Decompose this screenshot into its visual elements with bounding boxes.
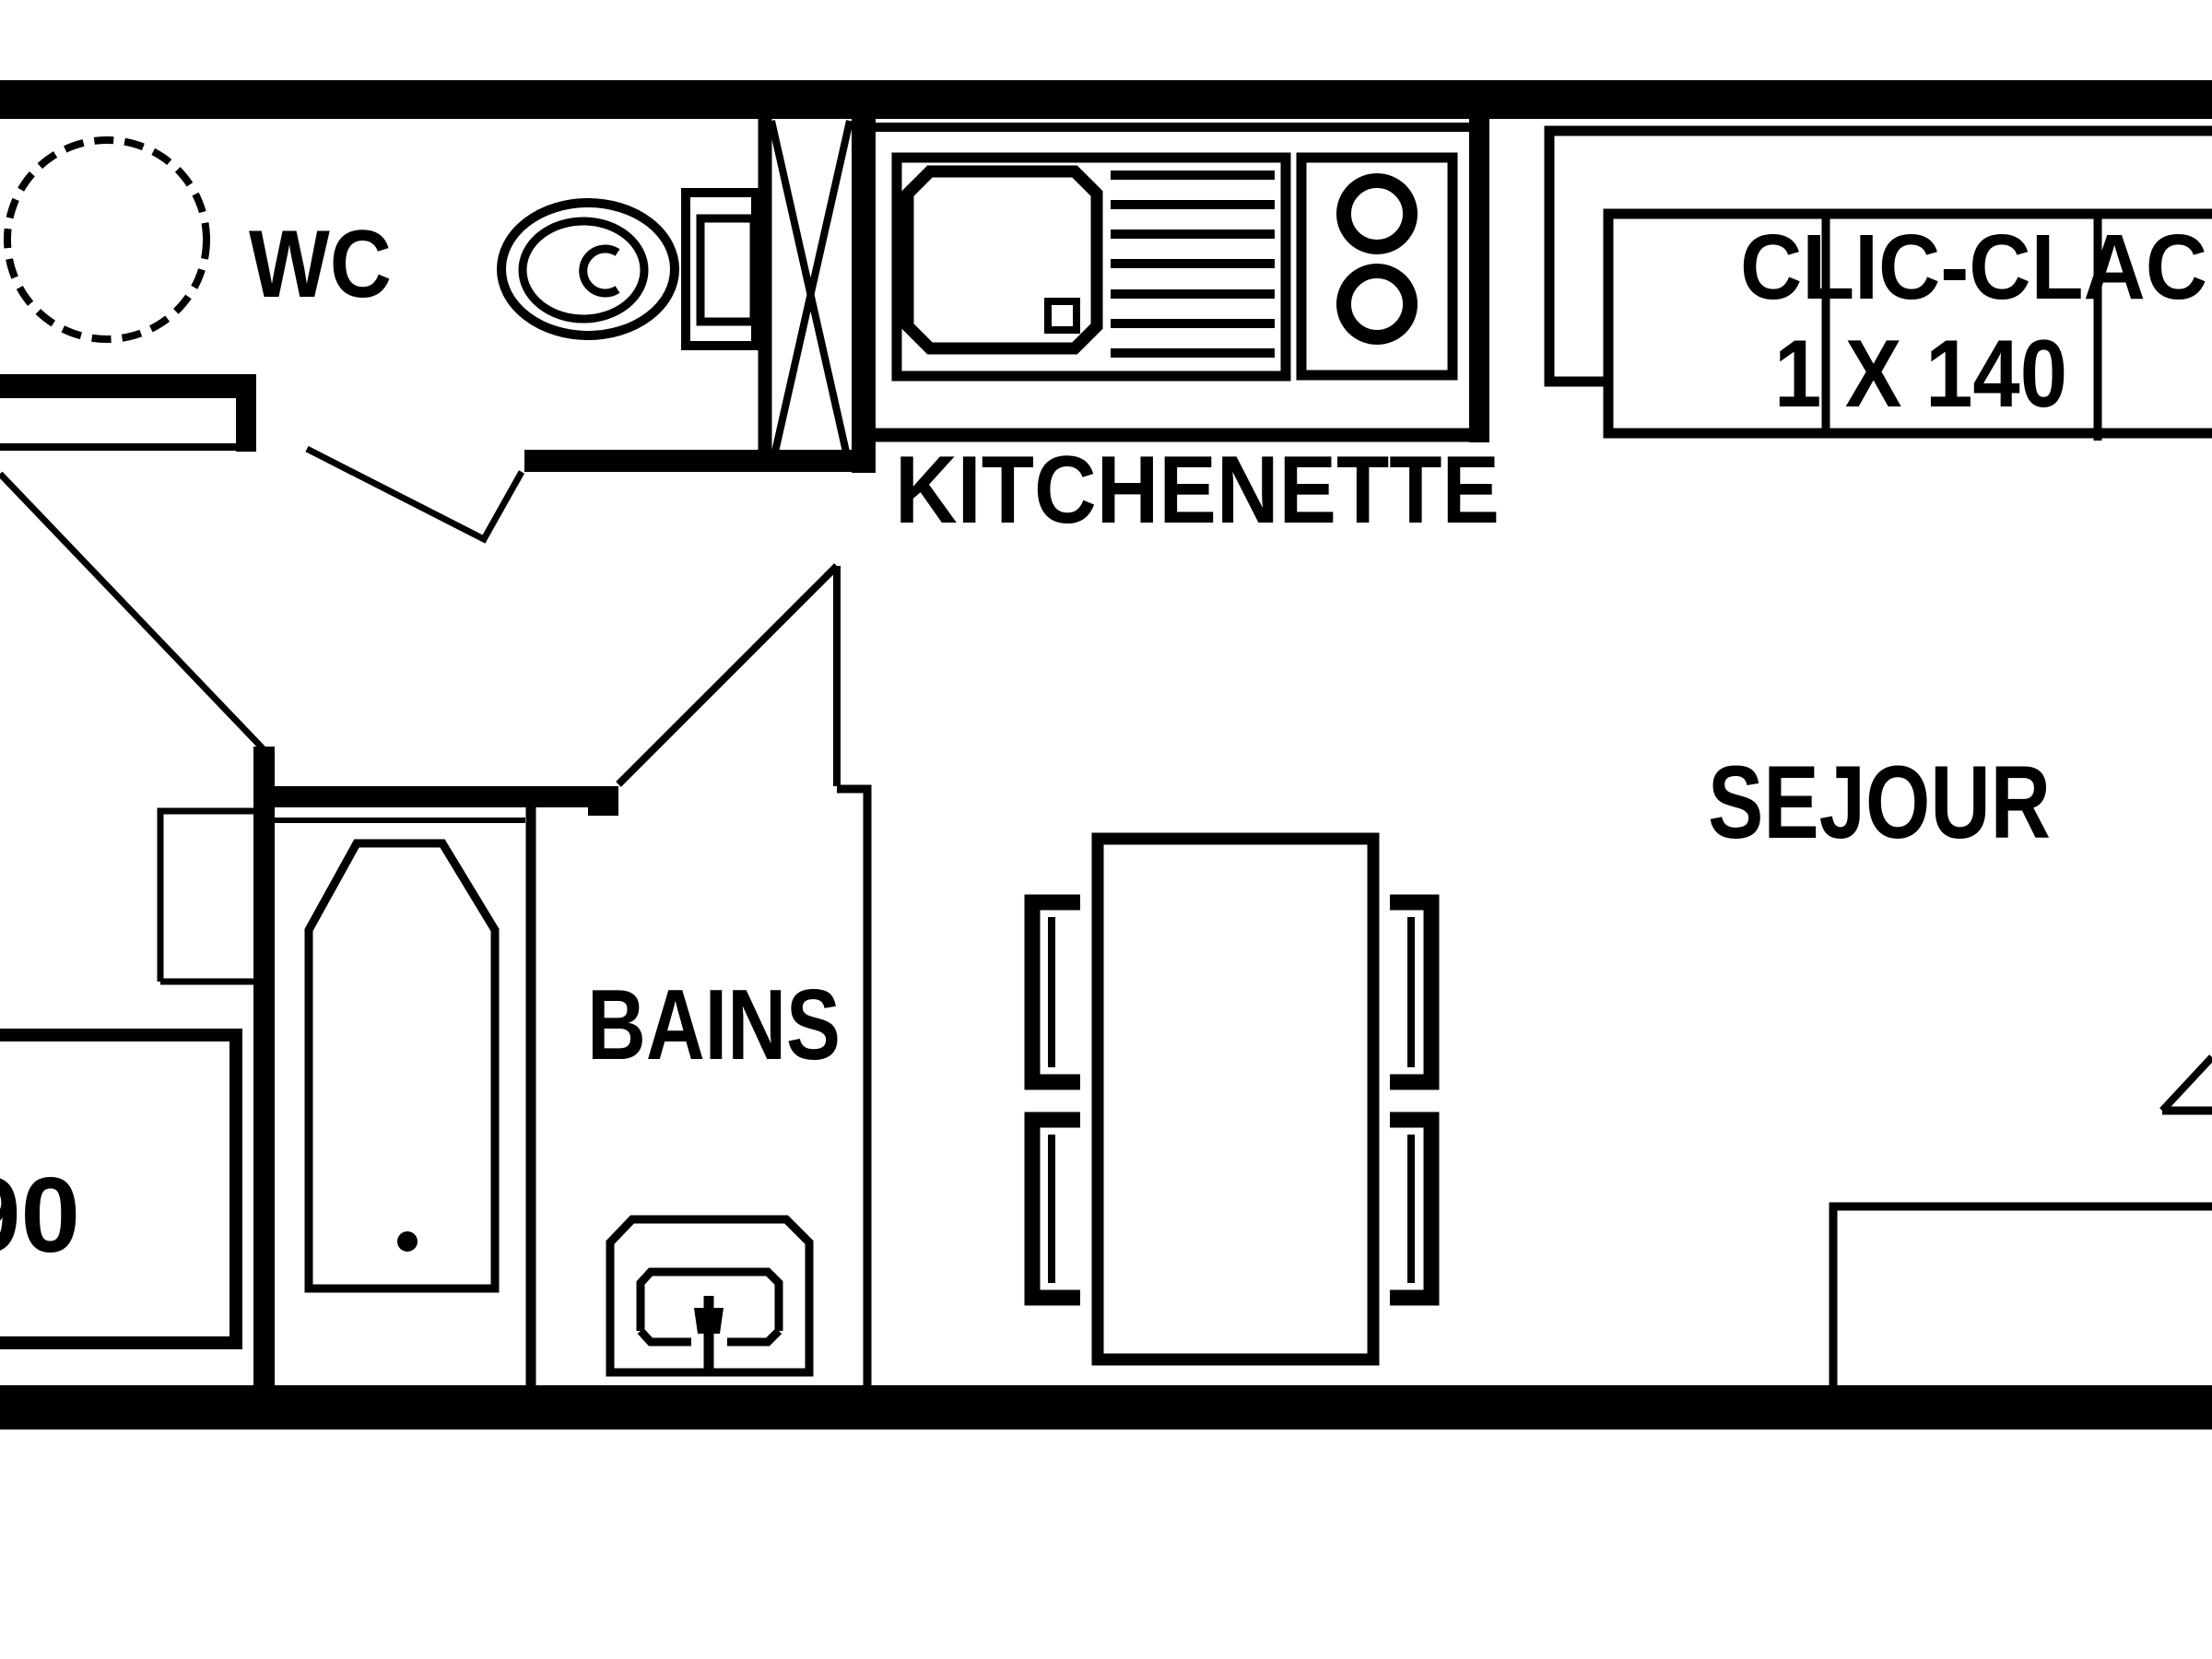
svg-text:CLIC-CLAC: CLIC-CLAC — [1740, 216, 2207, 319]
svg-text:WC: WC — [249, 211, 392, 318]
svg-text:BAINS: BAINS — [587, 969, 841, 1081]
svg-text:1 X 140: 1 X 140 — [1774, 321, 2067, 428]
svg-text:KITCHENETTE: KITCHENETTE — [895, 437, 1500, 544]
svg-text:SEJOUR: SEJOUR — [1708, 745, 2051, 860]
svg-text:90: 90 — [0, 1155, 80, 1275]
